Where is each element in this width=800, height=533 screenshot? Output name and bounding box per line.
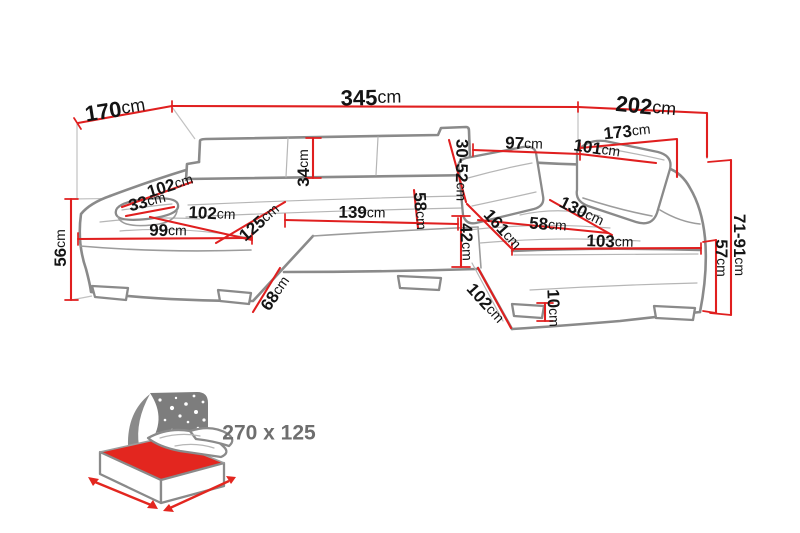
- dim-backrest-height: 34cm: [294, 149, 313, 187]
- dim-seat-depth-left: 102cm: [188, 202, 236, 223]
- sofa-leg: [218, 290, 251, 304]
- dim-seat-front-height: 42cm: [457, 223, 477, 261]
- dim-backrest-height-adjustable: 30-52cm: [452, 139, 472, 201]
- dim-depth-left-total: 170cm: [83, 92, 147, 126]
- dim-seat-height-right: 57cm: [713, 239, 732, 277]
- sofa-leg: [398, 276, 441, 290]
- bed-size-label: 270 x 125: [222, 422, 316, 445]
- sofa-leg: [512, 304, 544, 318]
- diagram-canvas: 170cm 345cm 202cm 173cm 97cm 101cm 30-52…: [0, 0, 800, 533]
- dim-width-total: 345cm: [340, 84, 401, 110]
- sofa-leg: [654, 306, 695, 320]
- dim-seat-width-right: 58cm: [528, 213, 567, 235]
- dim-back-height-right: 71-91cm: [731, 214, 750, 276]
- moon-sliver: [128, 394, 150, 446]
- sofa-leg: [92, 286, 128, 300]
- dim-seat-width-middle: 139cm: [338, 202, 385, 222]
- dim-width-right: 173cm: [603, 119, 652, 143]
- dim-back-section-left: 97cm: [505, 133, 543, 153]
- dim-depth-right-total: 202cm: [615, 90, 678, 121]
- bed-function-icon: 270 x 125: [88, 392, 316, 512]
- sofa-dimension-diagram: 170cm 345cm 202cm 173cm 97cm 101cm 30-52…: [0, 0, 800, 533]
- dim-side-height-left: 56cm: [51, 229, 70, 267]
- dim-chaise-left-width: 99cm: [149, 220, 187, 240]
- dim-leg-height: 10cm: [544, 289, 564, 327]
- dim-chaise-right-width: 103cm: [586, 231, 634, 252]
